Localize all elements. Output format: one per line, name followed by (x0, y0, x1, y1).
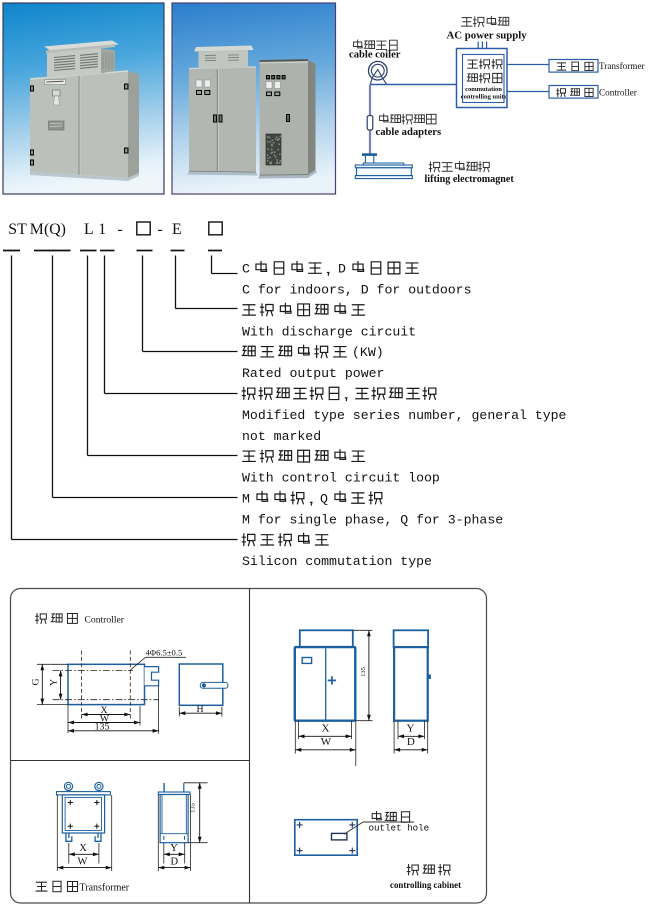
svg-text:D: D (407, 736, 415, 748)
svg-text:With control circuit loop: With control circuit loop (242, 471, 440, 486)
svg-text:D: D (338, 262, 346, 277)
svg-text:cable adapters: cable adapters (376, 127, 442, 138)
svg-text:W: W (78, 857, 88, 868)
svg-text:M: M (30, 221, 44, 238)
svg-text:outlet hole: outlet hole (369, 823, 430, 834)
svg-text:135: 135 (360, 667, 367, 677)
svg-text:G: G (31, 678, 42, 685)
svg-text:lifting electromagnet: lifting electromagnet (425, 174, 515, 185)
svg-text:AC power supply: AC power supply (447, 30, 528, 42)
svg-text:Controller: Controller (599, 88, 637, 98)
svg-text:D: D (171, 857, 179, 868)
svg-text:controlling units: controlling units (461, 94, 507, 101)
svg-text:M for single phase, Q for 3-ph: M for single phase, Q for 3-phase (242, 512, 503, 527)
svg-text:Rated output power: Rated output power (242, 366, 384, 381)
svg-text:not marked: not marked (242, 429, 321, 444)
svg-text:C for indoors, D for outdoors: C for indoors, D for outdoors (242, 283, 472, 298)
svg-text:Modified type series number, g: Modified type series number, general typ… (242, 408, 567, 423)
svg-text:X: X (79, 843, 87, 854)
svg-text:-: - (118, 221, 123, 238)
svg-text:L: L (84, 221, 94, 238)
svg-text:Transformer: Transformer (599, 61, 645, 71)
svg-text:ST: ST (8, 221, 27, 238)
svg-text:(Q): (Q) (44, 221, 66, 238)
svg-text:Y: Y (49, 679, 60, 686)
svg-text:X: X (322, 723, 330, 735)
svg-text:Y: Y (170, 843, 178, 854)
svg-text:Y: Y (407, 723, 415, 735)
svg-text:With discharge circuit: With discharge circuit (242, 324, 416, 339)
svg-text:Silicon commutation type: Silicon commutation type (242, 554, 432, 569)
svg-text:W: W (321, 736, 332, 748)
svg-text:Q: Q (320, 492, 328, 507)
svg-text:commutation: commutation (465, 86, 502, 93)
svg-text:cable coiler: cable coiler (349, 50, 401, 61)
svg-text:Transformer: Transformer (80, 883, 130, 894)
svg-text:-: - (158, 221, 163, 238)
svg-text:M: M (242, 492, 250, 507)
svg-text:(KW): (KW) (352, 345, 384, 360)
svg-text:controlling cabinet: controlling cabinet (390, 880, 461, 890)
svg-text:4Φ6.5±0.5: 4Φ6.5±0.5 (146, 648, 183, 658)
svg-text:135: 135 (190, 803, 197, 813)
svg-text:H: H (196, 704, 203, 715)
svg-text:135: 135 (95, 722, 110, 733)
svg-text:C: C (242, 262, 250, 277)
svg-text:1: 1 (98, 221, 106, 238)
svg-text:Controller: Controller (85, 615, 125, 626)
svg-text:E: E (172, 221, 182, 238)
